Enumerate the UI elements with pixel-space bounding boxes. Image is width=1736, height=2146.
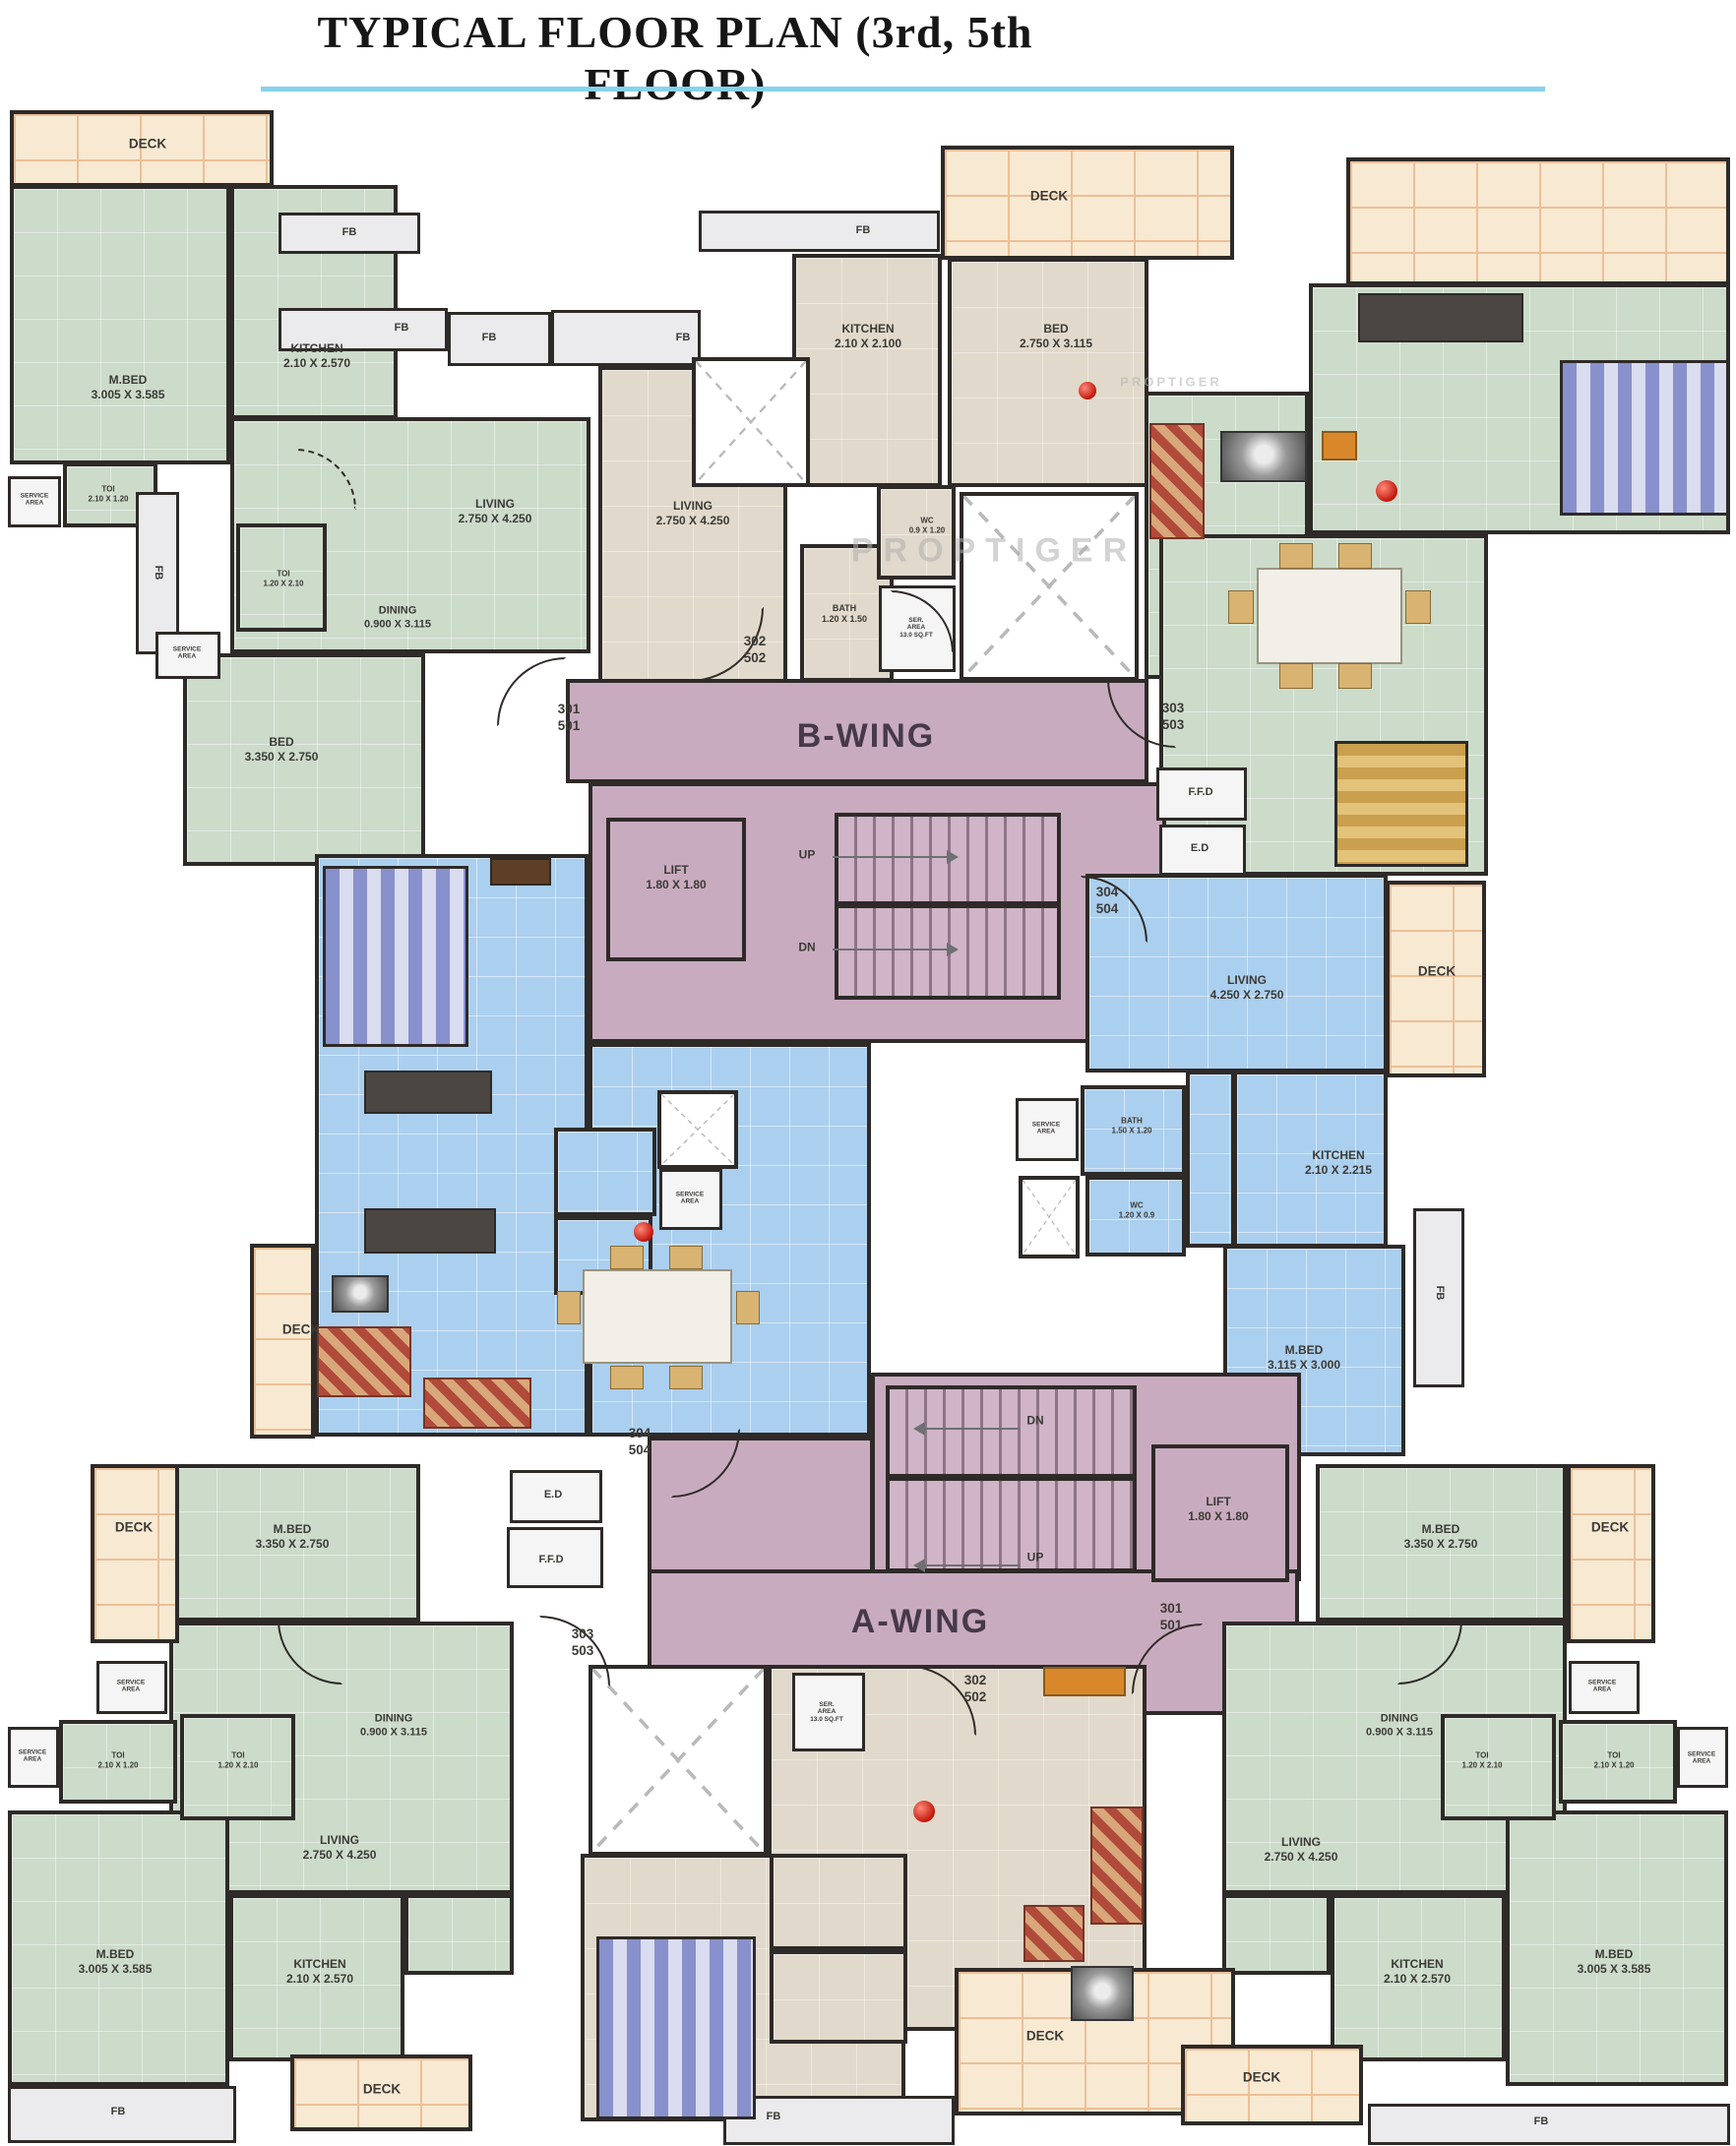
sofa-bm-1 xyxy=(1090,1807,1144,1925)
room-rb-wc xyxy=(1085,1176,1186,1257)
duct-rb xyxy=(1019,1176,1080,1258)
sofa-lb-2 xyxy=(423,1378,531,1429)
lift-a xyxy=(1151,1444,1289,1582)
fb-strip-right-vertical xyxy=(1413,1208,1464,1387)
fb-strip-4 xyxy=(551,310,701,366)
fb-strip-1 xyxy=(279,213,420,254)
room-lb-bath xyxy=(554,1128,656,1216)
room-bl-mbed2 xyxy=(8,1810,229,2086)
service-area-br-1 xyxy=(1569,1661,1640,1714)
stair-arrow-up-a xyxy=(925,1564,1020,1566)
deck-br xyxy=(1567,1464,1655,1643)
stair-landing-b xyxy=(837,901,1059,908)
service-area-tl-1 xyxy=(8,476,61,527)
wardrobe-lb xyxy=(490,858,551,886)
kitchen-counter-tr xyxy=(1358,293,1523,342)
stair-arrow-up-b xyxy=(833,856,949,858)
fb-strip-bottom-center xyxy=(723,2096,955,2145)
fb-strip-5 xyxy=(699,211,940,252)
duct-a xyxy=(589,1665,768,1856)
deck-bl-bottom xyxy=(290,2054,472,2131)
plant-pot-lb xyxy=(634,1222,653,1242)
room-br-passage xyxy=(1222,1894,1331,1975)
arrowhead xyxy=(913,1559,925,1572)
chair xyxy=(610,1366,644,1389)
room-bm-wc xyxy=(770,1950,907,2044)
duct-b-2 xyxy=(960,492,1139,681)
ffd-box-a xyxy=(507,1527,603,1588)
ser-area-bm xyxy=(792,1673,865,1751)
duct-b-1 xyxy=(692,357,810,487)
room-br-kitchen xyxy=(1331,1894,1506,2061)
fb-strip-left-vertical xyxy=(136,492,179,654)
room-rb-hall xyxy=(1186,1071,1235,1248)
deck-br-bottom xyxy=(1181,2045,1363,2125)
chair xyxy=(669,1366,703,1389)
dining-table-tr xyxy=(1257,568,1402,664)
room-tm-bed xyxy=(948,258,1148,487)
plant-pot-tr xyxy=(1376,480,1397,502)
room-bl-toilet-1 xyxy=(59,1720,177,1804)
ed-box-a xyxy=(510,1470,602,1523)
room-bl-mbed xyxy=(169,1464,420,1622)
chair xyxy=(610,1246,644,1269)
chair xyxy=(1338,543,1372,569)
room-br-mbed2 xyxy=(1506,1810,1728,2086)
bed-furniture-tr xyxy=(1560,360,1729,516)
deck-bl xyxy=(91,1464,179,1643)
ffd-box-b xyxy=(1156,767,1247,821)
service-area-rb xyxy=(1016,1098,1079,1161)
deck-top-left xyxy=(10,110,274,187)
room-rb-kitchen xyxy=(1233,1071,1388,1248)
fb-strip-bottom-left xyxy=(8,2086,236,2143)
chair xyxy=(1279,663,1313,689)
chair xyxy=(1405,590,1431,624)
room-br-toilet-2 xyxy=(1441,1714,1556,1820)
floor-plan: TYPICAL FLOOR PLAN (3rd, 5th FLOOR) xyxy=(0,0,1736,2146)
sofa-tr xyxy=(1149,423,1205,539)
room-br-toilet-1 xyxy=(1559,1720,1677,1804)
tv-unit-bm xyxy=(1071,1966,1134,2021)
room-rb-bath xyxy=(1081,1085,1186,1176)
room-bm-bath xyxy=(770,1854,907,1950)
chair xyxy=(1228,590,1254,624)
room-bl-kitchen xyxy=(229,1894,404,2061)
service-area-bl-2 xyxy=(8,1727,59,1788)
tv-unit-lb xyxy=(332,1275,389,1313)
plant-pot-tm xyxy=(1079,382,1096,399)
chair xyxy=(669,1246,703,1269)
service-area-br-2 xyxy=(1677,1727,1728,1788)
stair-arrow-dn-b xyxy=(833,949,949,950)
room-tl-mbed xyxy=(10,185,230,464)
room-tm-wc xyxy=(877,485,956,580)
duct-lb xyxy=(657,1090,738,1169)
kitchen-counter-lb-1 xyxy=(364,1071,492,1114)
stair-arrow-dn-a xyxy=(925,1428,1020,1430)
bed-furniture-lb xyxy=(323,866,468,1047)
deck-top-right xyxy=(1346,157,1730,285)
sofa-lb-1 xyxy=(317,1326,411,1397)
door-arc xyxy=(539,1616,610,1686)
chair xyxy=(557,1291,581,1324)
deck-top-middle xyxy=(941,146,1234,260)
title-underline xyxy=(261,87,1545,92)
room-br-mbed xyxy=(1316,1464,1567,1622)
room-tl-bed xyxy=(183,653,425,866)
arrowhead xyxy=(947,943,959,956)
deck-lb xyxy=(250,1244,315,1439)
arrowhead xyxy=(913,1422,925,1436)
sofa-bm-2 xyxy=(1023,1905,1085,1962)
service-area-bl-1 xyxy=(96,1661,167,1714)
room-bl-passage xyxy=(404,1894,514,1975)
fb-strip-3 xyxy=(448,312,551,366)
chair xyxy=(1279,543,1313,569)
kitchen-counter-lb-2 xyxy=(364,1208,496,1254)
ed-box-b xyxy=(1159,825,1246,876)
plant-pot-bm xyxy=(913,1801,935,1822)
service-area-tl-2 xyxy=(155,632,220,679)
room-tm-kitchen xyxy=(792,254,942,487)
stair-landing-a xyxy=(888,1474,1135,1481)
cabinet-bm xyxy=(1043,1667,1126,1696)
service-area-lb xyxy=(659,1169,722,1230)
door-arc xyxy=(497,657,566,726)
dining-table-lb xyxy=(583,1269,732,1364)
corridor-b-wing xyxy=(566,679,1148,783)
chair xyxy=(736,1291,760,1324)
tv-unit-tr xyxy=(1220,431,1307,482)
arrowhead xyxy=(947,850,959,864)
bed-furniture-bm xyxy=(596,1936,756,2119)
room-bl-toilet-2 xyxy=(180,1714,295,1820)
room-tl-toilet-2 xyxy=(236,523,327,632)
bed-furniture-tr-2 xyxy=(1334,741,1468,867)
chair xyxy=(1338,663,1372,689)
lift-b xyxy=(606,818,746,961)
cabinet-tr xyxy=(1322,431,1357,460)
page-title: TYPICAL FLOOR PLAN (3rd, 5th FLOOR) xyxy=(236,6,1114,110)
fb-strip-bottom-right xyxy=(1368,2104,1730,2145)
fb-strip-2 xyxy=(279,308,448,351)
deck-rb xyxy=(1386,881,1486,1077)
